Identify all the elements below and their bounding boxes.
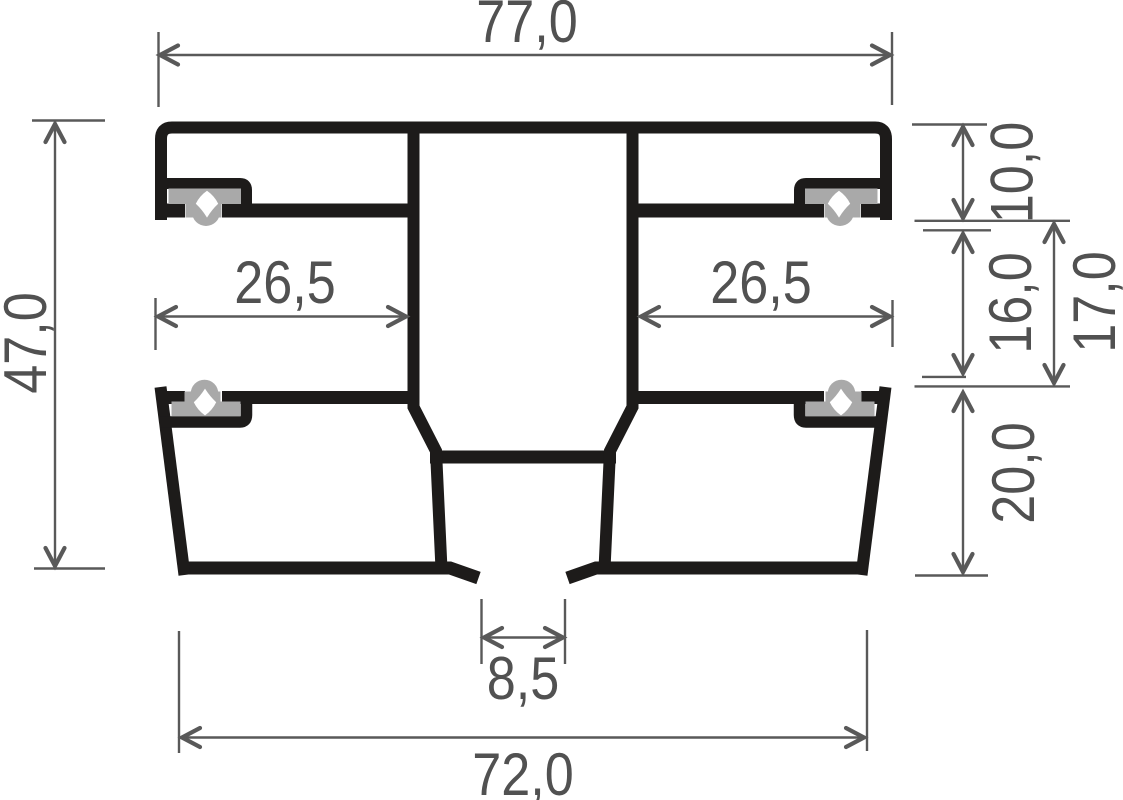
svg-text:47,0: 47,0	[0, 292, 59, 394]
svg-text:26,5: 26,5	[710, 249, 812, 316]
svg-text:16,0: 16,0	[977, 252, 1044, 354]
svg-text:20,0: 20,0	[980, 422, 1047, 524]
svg-text:77,0: 77,0	[476, 0, 578, 55]
svg-text:26,5: 26,5	[234, 249, 336, 316]
svg-text:8,5: 8,5	[487, 645, 560, 712]
svg-text:17,0: 17,0	[1061, 251, 1123, 353]
svg-text:10,0: 10,0	[978, 122, 1045, 224]
svg-text:72,0: 72,0	[472, 741, 574, 800]
